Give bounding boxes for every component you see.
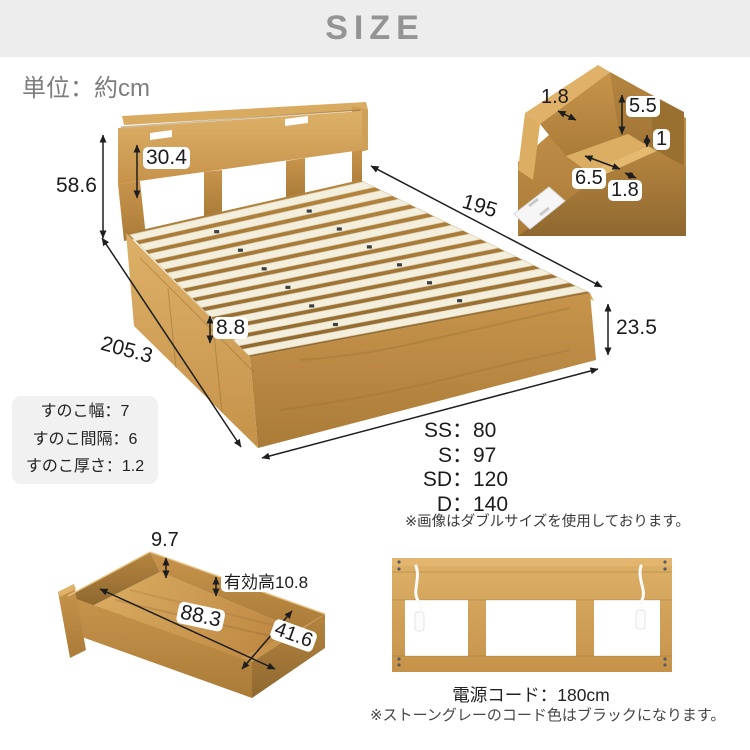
- size-value: 120: [473, 468, 508, 493]
- size-key: SS: [414, 419, 452, 444]
- power-cord-note: ※ストーングレーのコード色はブラックになります。: [370, 704, 725, 725]
- headboard-back-illustration: [392, 558, 672, 672]
- image-size-note: ※画像はダブルサイズを使用しております。: [405, 510, 690, 531]
- dim-front-thickness: 1.8: [608, 180, 642, 201]
- size-colon: ：: [452, 444, 473, 469]
- size-value: 97: [473, 444, 496, 469]
- size-row-s: S：97: [414, 444, 508, 469]
- slat-width-line: すのこ幅：7: [41, 400, 130, 425]
- dim-drawer-inner-height: 有効高10.8: [221, 574, 311, 592]
- slat-info-box: すのこ幅：7 すのこ間隔：6 すのこ厚さ：1.2: [12, 396, 158, 484]
- size-colon: ：: [452, 419, 473, 444]
- dim-ledge-step: 1: [653, 129, 670, 150]
- width-size-list: SS：80 S：97 SD：120 D：140: [414, 419, 508, 517]
- dim-back-thickness: 1.8: [541, 87, 569, 108]
- size-value: 80: [473, 419, 496, 444]
- size-diagram-page: SIZE 単位：約cm: [0, 0, 750, 750]
- size-key: S: [414, 444, 452, 469]
- dim-shelf-inner-height: 5.5: [626, 96, 660, 117]
- dim-shelf-depth: 6.5: [572, 168, 606, 189]
- size-row-sd: SD：120: [414, 468, 508, 493]
- slat-thickness-line: すのこ厚さ：1.2: [26, 455, 144, 480]
- dim-slat-rise: 8.8: [213, 317, 248, 339]
- size-key: SD: [414, 468, 452, 493]
- dim-headboard-height: 30.4: [143, 147, 190, 169]
- size-row-ss: SS：80: [414, 419, 508, 444]
- dim-drawer-wall-height: 9.7: [151, 530, 179, 551]
- slat-gap-line: すのこ間隔：6: [33, 428, 138, 453]
- corner-detail-illustration: [514, 65, 686, 236]
- dim-base-height: 23.5: [616, 317, 657, 339]
- size-colon: ：: [452, 468, 473, 493]
- dim-total-height: 58.6: [56, 175, 97, 197]
